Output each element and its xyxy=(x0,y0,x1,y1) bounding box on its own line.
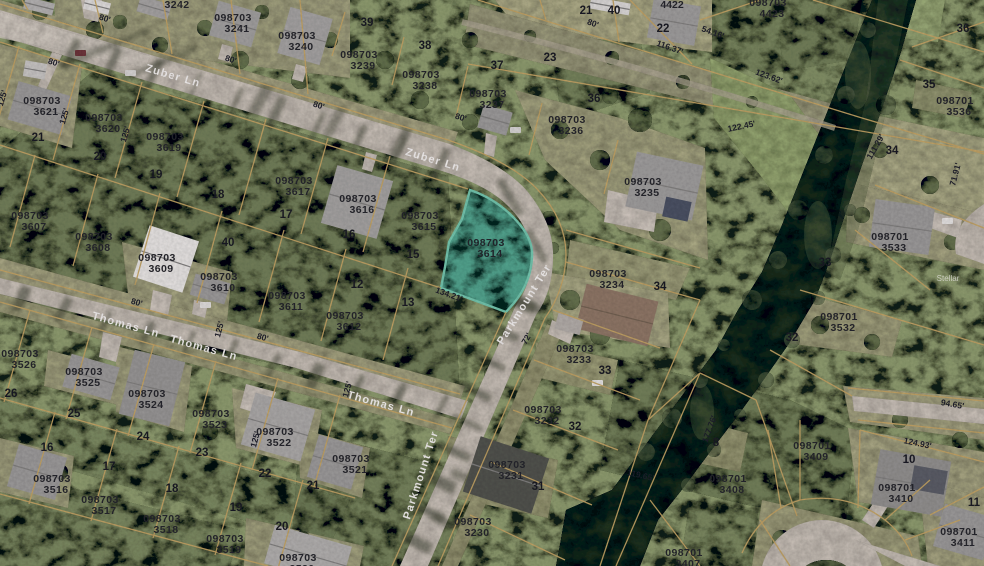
svg-text:Stellar: Stellar xyxy=(937,274,960,283)
